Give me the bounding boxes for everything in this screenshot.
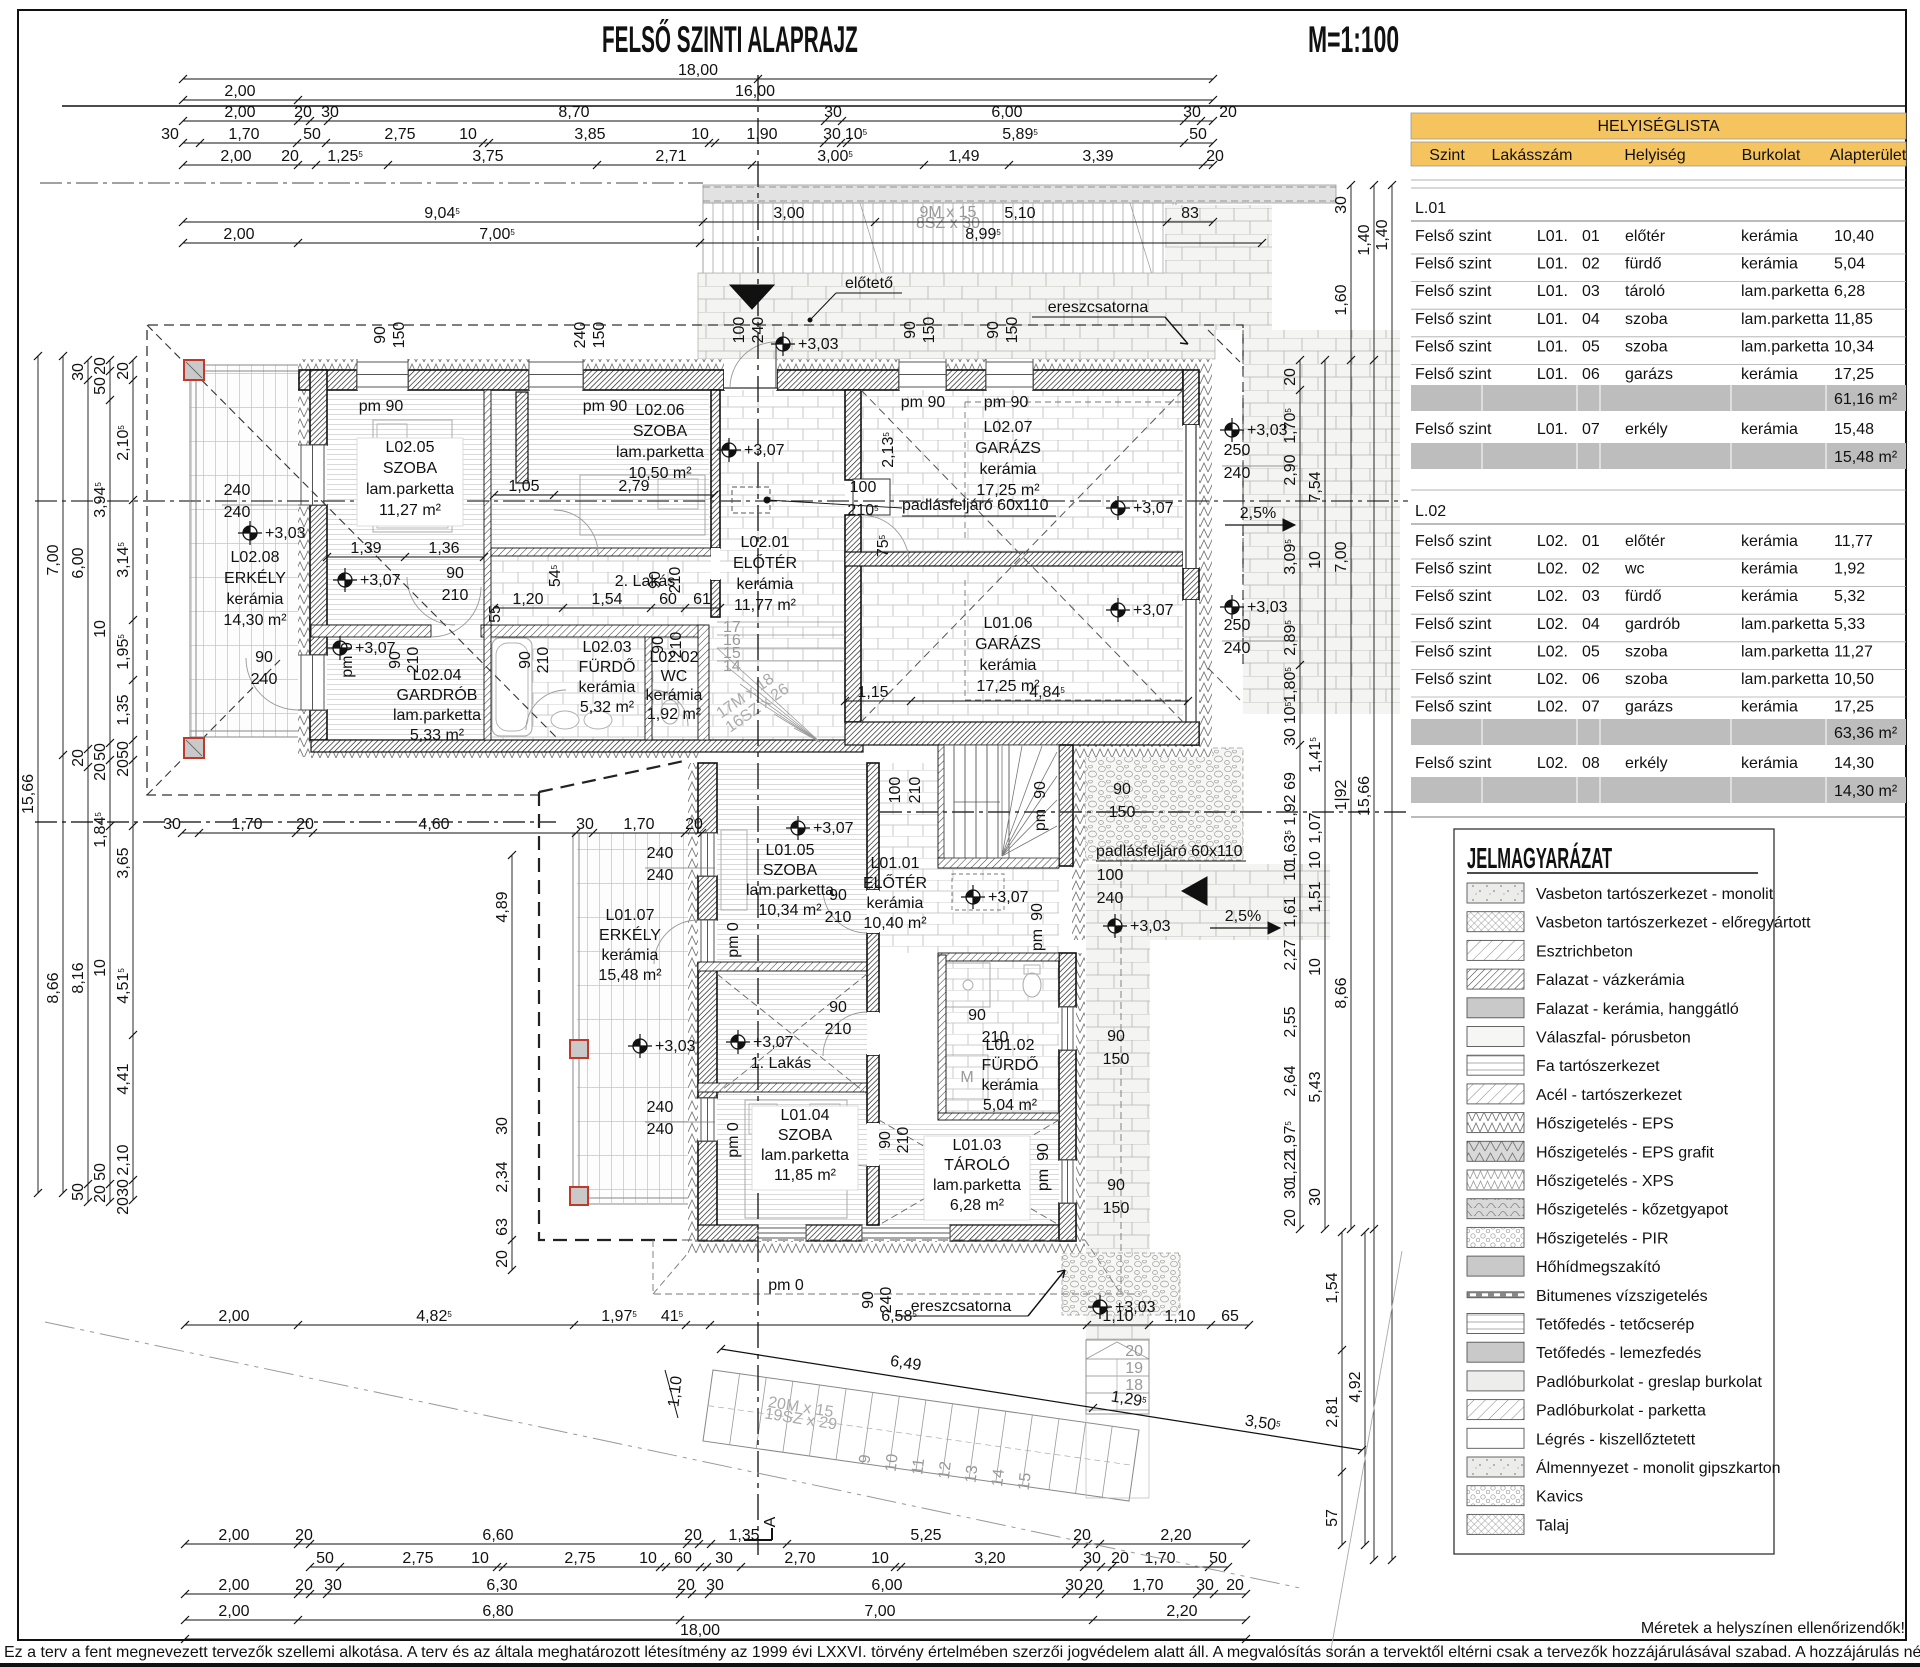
svg-text:10: 10: [1307, 551, 1324, 569]
svg-text:Felső szint: Felső szint: [1415, 256, 1492, 273]
svg-text:10,34 m²: 10,34 m²: [758, 902, 822, 919]
svg-text:2,00: 2,00: [220, 148, 251, 165]
svg-text:13: 13: [962, 1464, 981, 1484]
svg-text:10,34: 10,34: [1834, 338, 1874, 355]
svg-text:4,515: 4,515: [115, 968, 132, 1004]
svg-text:L01.: L01.: [1537, 421, 1568, 438]
svg-text:1,54: 1,54: [591, 591, 622, 608]
svg-text:90: 90: [650, 636, 667, 654]
svg-text:90: 90: [387, 651, 404, 669]
svg-text:30: 30: [115, 1179, 132, 1197]
svg-text:30: 30: [1196, 1577, 1214, 1594]
svg-text:ereszcsatorna: ereszcsatorna: [911, 1298, 1012, 1315]
svg-text:1,05: 1,05: [508, 478, 539, 495]
svg-text:2,55: 2,55: [1282, 1006, 1299, 1037]
svg-text:pm 90: pm 90: [984, 394, 1029, 411]
svg-text:6,00: 6,00: [70, 547, 87, 578]
svg-text:50: 50: [92, 1163, 109, 1181]
svg-text:L01.06: L01.06: [984, 615, 1033, 632]
svg-text:lam.parketta: lam.parketta: [1741, 338, 1829, 355]
svg-text:szoba: szoba: [1625, 311, 1668, 328]
svg-text:3,75: 3,75: [472, 148, 503, 165]
svg-text:Méretek a helyszínen ellenőriz: Méretek a helyszínen ellenőrizendők!: [1641, 1620, 1905, 1637]
svg-text:210: 210: [535, 647, 552, 674]
svg-text:Tetőfedés - lemezfedés: Tetőfedés - lemezfedés: [1536, 1345, 1701, 1362]
svg-text:210: 210: [405, 647, 422, 674]
svg-text:210: 210: [825, 909, 852, 926]
svg-text:3,945: 3,945: [92, 482, 109, 518]
svg-text:2,5%: 2,5%: [1240, 505, 1276, 522]
svg-text:5,43: 5,43: [1307, 1071, 1324, 1102]
svg-text:lam.parketta: lam.parketta: [366, 481, 454, 498]
svg-text:A: A: [762, 1516, 779, 1527]
svg-text:Felső szint: Felső szint: [1415, 228, 1492, 245]
svg-text:Talaj: Talaj: [1536, 1517, 1569, 1534]
svg-text:4,41: 4,41: [115, 1063, 132, 1094]
svg-text:Álmennyezet - monolit gipszkar: Álmennyezet - monolit gipszkarton: [1536, 1458, 1781, 1477]
svg-text:1,92: 1,92: [1834, 561, 1865, 578]
svg-text:2,00: 2,00: [218, 1577, 249, 1594]
svg-text:kerámia: kerámia: [737, 576, 794, 593]
svg-text:L02.: L02.: [1537, 643, 1568, 660]
svg-text:15,66: 15,66: [20, 774, 37, 814]
svg-text:kerámia: kerámia: [1741, 228, 1798, 245]
svg-text:Padlóburkolat - greslap burkol: Padlóburkolat - greslap burkolat: [1536, 1374, 1762, 1391]
svg-text:2,895: 2,895: [1282, 620, 1299, 656]
svg-text:250: 250: [1224, 617, 1251, 634]
svg-text:1,35: 1,35: [728, 1527, 759, 1544]
svg-text:2,00: 2,00: [223, 226, 254, 243]
svg-text:Tetőfedés - tetőcserép: Tetőfedés - tetőcserép: [1536, 1317, 1694, 1334]
svg-text:100: 100: [887, 777, 904, 804]
svg-text:6,585: 6,585: [881, 1308, 917, 1325]
svg-text:90: 90: [517, 651, 534, 669]
svg-text:Fa tartószerkezet: Fa tartószerkezet: [1536, 1058, 1660, 1075]
svg-text:Ez a terv a fent megnevezett t: Ez a terv a fent megnevezett tervezők sz…: [4, 1644, 1920, 1661]
svg-text:kerámia: kerámia: [227, 591, 284, 608]
svg-text:90: 90: [1113, 781, 1131, 798]
svg-text:kerámia: kerámia: [1741, 533, 1798, 550]
svg-text:240: 240: [647, 867, 674, 884]
svg-text:L01.03: L01.03: [953, 1137, 1002, 1154]
svg-text:3,85: 3,85: [574, 126, 605, 143]
svg-text:Vasbeton tartószerkezet - mono: Vasbeton tartószerkezet - monolit: [1536, 886, 1774, 903]
svg-text:30: 30: [823, 126, 841, 143]
svg-text:11,27: 11,27: [1834, 643, 1873, 660]
svg-text:L02.: L02.: [1537, 699, 1568, 716]
svg-text:07: 07: [1582, 421, 1600, 438]
svg-text:1,54: 1,54: [1324, 1272, 1341, 1303]
svg-text:10: 10: [92, 620, 109, 638]
svg-text:20: 20: [92, 763, 109, 781]
svg-text:SZOBA: SZOBA: [778, 1127, 833, 1144]
svg-text:63: 63: [494, 1218, 511, 1236]
svg-text:kerámia: kerámia: [1741, 755, 1798, 772]
svg-text:4,89: 4,89: [494, 891, 511, 922]
svg-text:1,975: 1,975: [1282, 1121, 1299, 1157]
svg-text:Felső szint: Felső szint: [1415, 561, 1492, 578]
svg-text:5,33: 5,33: [1834, 616, 1865, 633]
svg-text:50: 50: [70, 1183, 87, 1201]
svg-text:pm 0: pm 0: [339, 642, 356, 678]
svg-text:Felső szint: Felső szint: [1415, 755, 1492, 772]
svg-text:30: 30: [1065, 1577, 1083, 1594]
svg-text:2,71: 2,71: [655, 148, 686, 165]
svg-text:lam.parketta: lam.parketta: [933, 1177, 1021, 1194]
svg-text:07: 07: [1582, 699, 1600, 716]
svg-text:5,10: 5,10: [1004, 205, 1035, 222]
svg-text:6,28 m²: 6,28 m²: [950, 1197, 1005, 1214]
svg-text:L01.04: L01.04: [781, 1107, 830, 1124]
svg-text:15,48: 15,48: [1834, 421, 1874, 438]
svg-text:7,005: 7,005: [479, 226, 515, 243]
svg-text:20: 20: [685, 816, 703, 833]
svg-text:1,70: 1,70: [228, 126, 259, 143]
svg-text:100: 100: [731, 317, 748, 344]
svg-text:04: 04: [1582, 311, 1600, 328]
svg-text:240: 240: [224, 482, 251, 499]
svg-text:2,27: 2,27: [1282, 939, 1299, 970]
svg-text:2,81: 2,81: [1324, 1396, 1341, 1427]
svg-text:2,64: 2,64: [1282, 1065, 1299, 1096]
svg-text:pm 90: pm 90: [359, 398, 404, 415]
svg-text:14,30 m²: 14,30 m²: [1834, 783, 1898, 800]
svg-text:10: 10: [883, 1453, 902, 1473]
svg-text:lam.parketta: lam.parketta: [761, 1147, 849, 1164]
svg-text:Felső szint: Felső szint: [1415, 616, 1492, 633]
svg-text:kerámia: kerámia: [579, 679, 636, 696]
svg-text:Válaszfal- pórusbeton: Válaszfal- pórusbeton: [1536, 1030, 1691, 1047]
svg-text:150: 150: [1103, 1200, 1130, 1217]
svg-text:5,895: 5,895: [1002, 126, 1038, 143]
svg-text:L.01: L.01: [1415, 200, 1446, 217]
svg-text:11,27 m²: 11,27 m²: [379, 502, 442, 519]
svg-text:240: 240: [647, 1121, 674, 1138]
svg-text:pm 90: pm 90: [901, 394, 946, 411]
svg-text:11: 11: [909, 1457, 928, 1476]
svg-text:3,095: 3,095: [1282, 539, 1299, 575]
svg-text:GARÁZS: GARÁZS: [975, 438, 1041, 457]
svg-text:Falazat - vázkerámia: Falazat - vázkerámia: [1536, 972, 1685, 989]
svg-text:1|92: 1|92: [1333, 779, 1350, 810]
svg-text:pm 0: pm 0: [768, 1277, 804, 1294]
svg-text:L02.05: L02.05: [386, 439, 435, 456]
svg-text:kerámia: kerámia: [1741, 588, 1798, 605]
svg-text:30: 30: [715, 1550, 733, 1567]
svg-text:30: 30: [1282, 1181, 1299, 1199]
svg-text:240: 240: [572, 322, 589, 349]
svg-text:L02.07: L02.07: [984, 419, 1033, 436]
svg-text:1,36: 1,36: [428, 540, 459, 557]
svg-text:1,10: 1,10: [665, 1375, 685, 1408]
svg-text:Helyiség: Helyiség: [1624, 147, 1685, 164]
svg-text:30: 30: [324, 1577, 342, 1594]
svg-text:2,00: 2,00: [218, 1308, 249, 1325]
svg-text:Felső szint: Felső szint: [1415, 699, 1492, 716]
svg-text:10: 10: [1307, 851, 1324, 869]
svg-text:2,105: 2,105: [115, 425, 132, 461]
svg-text:150: 150: [391, 322, 408, 349]
svg-text:pm 90: pm 90: [583, 398, 628, 415]
svg-text:5,04: 5,04: [1834, 256, 1865, 273]
svg-text:lam.parketta: lam.parketta: [1741, 643, 1829, 660]
svg-text:30: 30: [706, 1577, 724, 1594]
svg-text:ereszcsatorna: ereszcsatorna: [1048, 299, 1149, 316]
svg-text:1,40: 1,40: [1374, 219, 1391, 250]
svg-text:50: 50: [316, 1550, 334, 1567]
svg-text:6,80: 6,80: [482, 1603, 513, 1620]
svg-text:FÜRDŐ: FÜRDŐ: [982, 1055, 1039, 1074]
svg-text:150: 150: [1109, 804, 1136, 821]
svg-text:20: 20: [1226, 1577, 1244, 1594]
svg-text:60: 60: [674, 1550, 692, 1567]
svg-text:04: 04: [1582, 616, 1600, 633]
svg-text:2,75: 2,75: [384, 126, 415, 143]
svg-text:M: M: [960, 1069, 973, 1086]
svg-text:02: 02: [1582, 561, 1600, 578]
svg-text:30: 30: [1282, 728, 1299, 746]
svg-text:1,61: 1,61: [1282, 896, 1299, 927]
svg-text:6,00: 6,00: [991, 104, 1022, 121]
svg-text:5,04 m²: 5,04 m²: [983, 1097, 1038, 1114]
svg-text:240: 240: [750, 317, 767, 344]
svg-text:6,60: 6,60: [482, 1527, 513, 1544]
svg-text:90: 90: [647, 571, 664, 589]
svg-text:L02.06: L02.06: [636, 402, 685, 419]
svg-text:20: 20: [1282, 368, 1299, 386]
svg-text:1,10: 1,10: [1164, 1308, 1195, 1325]
svg-text:1,70: 1,70: [1132, 1577, 1163, 1594]
svg-text:2,79: 2,79: [618, 478, 649, 495]
svg-text:szoba: szoba: [1625, 643, 1668, 660]
svg-text:15,48 m²: 15,48 m²: [598, 967, 662, 984]
svg-text:90: 90: [255, 649, 273, 666]
svg-text:8,66: 8,66: [45, 972, 62, 1003]
svg-text:90: 90: [1107, 1028, 1125, 1045]
svg-text:Szint: Szint: [1429, 147, 1465, 164]
svg-text:7,00: 7,00: [864, 1603, 895, 1620]
svg-text:90: 90: [372, 326, 389, 344]
svg-text:60: 60: [659, 591, 677, 608]
svg-text:8,70: 8,70: [558, 104, 589, 121]
svg-text:3,20: 3,20: [974, 1550, 1005, 1567]
svg-text:10: 10: [1282, 863, 1299, 881]
svg-text:6,30: 6,30: [486, 1577, 517, 1594]
svg-text:lam.parketta: lam.parketta: [616, 444, 704, 461]
svg-text:+3,07: +3,07: [813, 820, 854, 837]
svg-text:4,60: 4,60: [418, 816, 449, 833]
svg-text:1,255: 1,255: [327, 148, 363, 165]
svg-text:100: 100: [1097, 867, 1124, 884]
svg-text:17,25: 17,25: [1834, 366, 1874, 383]
svg-text:4,92: 4,92: [1347, 1371, 1364, 1402]
svg-text:2,00: 2,00: [218, 1527, 249, 1544]
svg-text:1,705: 1,705: [1282, 408, 1299, 444]
svg-text:+3,03: +3,03: [655, 1038, 696, 1055]
svg-text:2,70: 2,70: [784, 1550, 815, 1567]
svg-text:+3,03: +3,03: [1130, 918, 1171, 935]
svg-text:Hőszigetelés - EPS grafit: Hőszigetelés - EPS grafit: [1536, 1144, 1714, 1161]
svg-text:garázs: garázs: [1625, 366, 1673, 383]
svg-text:L01.01: L01.01: [871, 855, 920, 872]
svg-text:1,51: 1,51: [1307, 881, 1324, 912]
svg-text:1,07: 1,07: [1307, 812, 1324, 843]
svg-text:90: 90: [1035, 1143, 1052, 1161]
svg-text:1,70: 1,70: [623, 816, 654, 833]
svg-text:Légrés - kiszellőztetett: Légrés - kiszellőztetett: [1536, 1431, 1696, 1448]
svg-text:L02.: L02.: [1537, 561, 1568, 578]
svg-text:1,60: 1,60: [1333, 284, 1350, 315]
svg-text:Padlóburkolat - parketta: Padlóburkolat - parketta: [1536, 1403, 1706, 1420]
svg-text:30: 30: [1333, 196, 1350, 214]
svg-text:kerámia: kerámia: [1741, 256, 1798, 273]
svg-text:kerámia: kerámia: [867, 895, 924, 912]
svg-text:pm 0: pm 0: [725, 922, 742, 958]
svg-text:Felső szint: Felső szint: [1415, 421, 1492, 438]
svg-text:20: 20: [1125, 1343, 1143, 1360]
svg-text:90: 90: [446, 565, 464, 582]
svg-text:14: 14: [989, 1468, 1008, 1488]
svg-text:02: 02: [1582, 256, 1600, 273]
svg-text:10: 10: [639, 1550, 657, 1567]
svg-text:1,635: 1,635: [1282, 830, 1299, 866]
svg-text:20: 20: [281, 148, 299, 165]
svg-text:10: 10: [92, 959, 109, 977]
svg-text:210: 210: [668, 632, 685, 659]
svg-text:1,10: 1,10: [1102, 1308, 1133, 1325]
svg-text:15,66: 15,66: [1356, 776, 1373, 816]
svg-text:+3,07: +3,07: [988, 889, 1029, 906]
svg-text:L01.: L01.: [1537, 228, 1568, 245]
svg-text:150: 150: [591, 322, 608, 349]
svg-text:1,415: 1,415: [1307, 737, 1324, 773]
svg-text:16,00: 16,00: [735, 83, 775, 100]
svg-text:57: 57: [1324, 1509, 1341, 1527]
svg-text:19: 19: [1125, 1360, 1143, 1377]
svg-text:8,995: 8,995: [965, 226, 1001, 243]
svg-text:Felső szint: Felső szint: [1415, 588, 1492, 605]
svg-text:L02.08: L02.08: [231, 549, 280, 566]
svg-text:210: 210: [442, 587, 469, 604]
svg-text:L01.: L01.: [1537, 256, 1568, 273]
svg-text:Lakásszám: Lakásszám: [1492, 147, 1573, 164]
svg-text:20: 20: [115, 759, 132, 777]
svg-text:15: 15: [1016, 1472, 1035, 1492]
svg-text:L02.: L02.: [1537, 533, 1568, 550]
svg-text:Falazat - kerámia, hanggátló: Falazat - kerámia, hanggátló: [1536, 1001, 1739, 1018]
svg-text:pm 0: pm 0: [725, 1122, 742, 1158]
svg-text:20: 20: [1073, 1527, 1091, 1544]
svg-text:padlásfeljáró 60x110: padlásfeljáró 60x110: [1096, 843, 1243, 860]
svg-text:90: 90: [829, 999, 847, 1016]
svg-text:2,20: 2,20: [1160, 1527, 1191, 1544]
svg-text:10: 10: [691, 126, 709, 143]
svg-text:erkély: erkély: [1625, 755, 1668, 772]
svg-text:150: 150: [921, 317, 938, 344]
svg-text:50: 50: [92, 743, 109, 761]
svg-text:kerámia: kerámia: [1741, 699, 1798, 716]
svg-text:L02.03: L02.03: [583, 639, 632, 656]
svg-text:61: 61: [693, 591, 711, 608]
svg-text:06: 06: [1582, 366, 1600, 383]
svg-text:1,35: 1,35: [115, 694, 132, 725]
svg-text:20: 20: [296, 816, 314, 833]
svg-text:1,20: 1,20: [512, 591, 543, 608]
svg-text:30: 30: [161, 126, 179, 143]
svg-text:L02.01: L02.01: [741, 534, 790, 551]
svg-text:lam.parketta: lam.parketta: [1741, 311, 1829, 328]
svg-text:kerámia: kerámia: [1741, 421, 1798, 438]
svg-text:20: 20: [494, 1250, 511, 1268]
svg-text:90: 90: [829, 887, 847, 904]
svg-text:+3,07: +3,07: [1133, 500, 1174, 517]
svg-text:1,92 m²: 1,92 m²: [647, 706, 702, 723]
svg-text:90: 90: [968, 1007, 986, 1024]
svg-text:GARÁZS: GARÁZS: [975, 634, 1041, 653]
svg-text:+3,07: +3,07: [753, 1034, 794, 1051]
svg-text:90: 90: [1107, 1177, 1125, 1194]
svg-text:20: 20: [70, 749, 87, 767]
svg-text:Felső szint: Felső szint: [1415, 366, 1492, 383]
svg-text:10: 10: [459, 126, 477, 143]
svg-text:fürdő: fürdő: [1625, 588, 1662, 605]
svg-text:6,00: 6,00: [871, 1577, 902, 1594]
svg-text:L.02: L.02: [1415, 503, 1446, 520]
svg-text:FELSŐ SZINTI ALAPRAJZ: FELSŐ SZINTI ALAPRAJZ: [602, 19, 858, 61]
svg-text:20: 20: [295, 1527, 313, 1544]
svg-text:2,00: 2,00: [218, 1603, 249, 1620]
svg-text:30: 30: [1083, 1550, 1101, 1567]
svg-text:83: 83: [1181, 205, 1199, 222]
svg-text:01: 01: [1582, 533, 1600, 550]
svg-text:1,92: 1,92: [1282, 794, 1299, 825]
svg-text:210: 210: [825, 1021, 852, 1038]
svg-text:kerámia: kerámia: [980, 657, 1037, 674]
svg-text:12: 12: [936, 1460, 955, 1480]
svg-text:05: 05: [1582, 338, 1600, 355]
svg-text:5,25: 5,25: [910, 1527, 941, 1544]
svg-text:2,75: 2,75: [564, 1550, 595, 1567]
svg-text:30: 30: [576, 816, 594, 833]
svg-text:03: 03: [1582, 588, 1600, 605]
svg-text:Hőszigetelés - PIR: Hőszigetelés - PIR: [1536, 1230, 1669, 1247]
svg-text:2,00: 2,00: [224, 83, 255, 100]
svg-text:11,77 m²: 11,77 m²: [734, 597, 797, 614]
svg-text:Felső szint: Felső szint: [1415, 671, 1492, 688]
svg-text:L01.: L01.: [1537, 283, 1568, 300]
svg-text:2,00: 2,00: [224, 104, 255, 121]
svg-text:30: 30: [70, 363, 87, 381]
svg-text:10,40: 10,40: [1834, 228, 1874, 245]
svg-text:pm: pm: [1029, 929, 1046, 951]
svg-text:63,36 m²: 63,36 m²: [1834, 725, 1898, 742]
svg-text:30: 30: [1307, 1188, 1324, 1206]
svg-text:6,28: 6,28: [1834, 283, 1865, 300]
svg-text:1,15: 1,15: [857, 684, 888, 701]
svg-text:ERKÉLY: ERKÉLY: [224, 568, 286, 587]
svg-text:M=1:100: M=1:100: [1308, 18, 1399, 60]
svg-text:20: 20: [1282, 1209, 1299, 1227]
svg-text:Alapterület: Alapterület: [1830, 147, 1907, 164]
svg-text:kerámia: kerámia: [1741, 366, 1798, 383]
svg-text:06: 06: [1582, 671, 1600, 688]
svg-text:20: 20: [677, 1577, 695, 1594]
svg-text:tároló: tároló: [1625, 283, 1665, 300]
svg-text:11,85 m²: 11,85 m²: [774, 1167, 837, 1184]
svg-text:erkély: erkély: [1625, 421, 1668, 438]
svg-text:20: 20: [92, 357, 109, 375]
svg-text:2,20: 2,20: [1166, 1603, 1197, 1620]
